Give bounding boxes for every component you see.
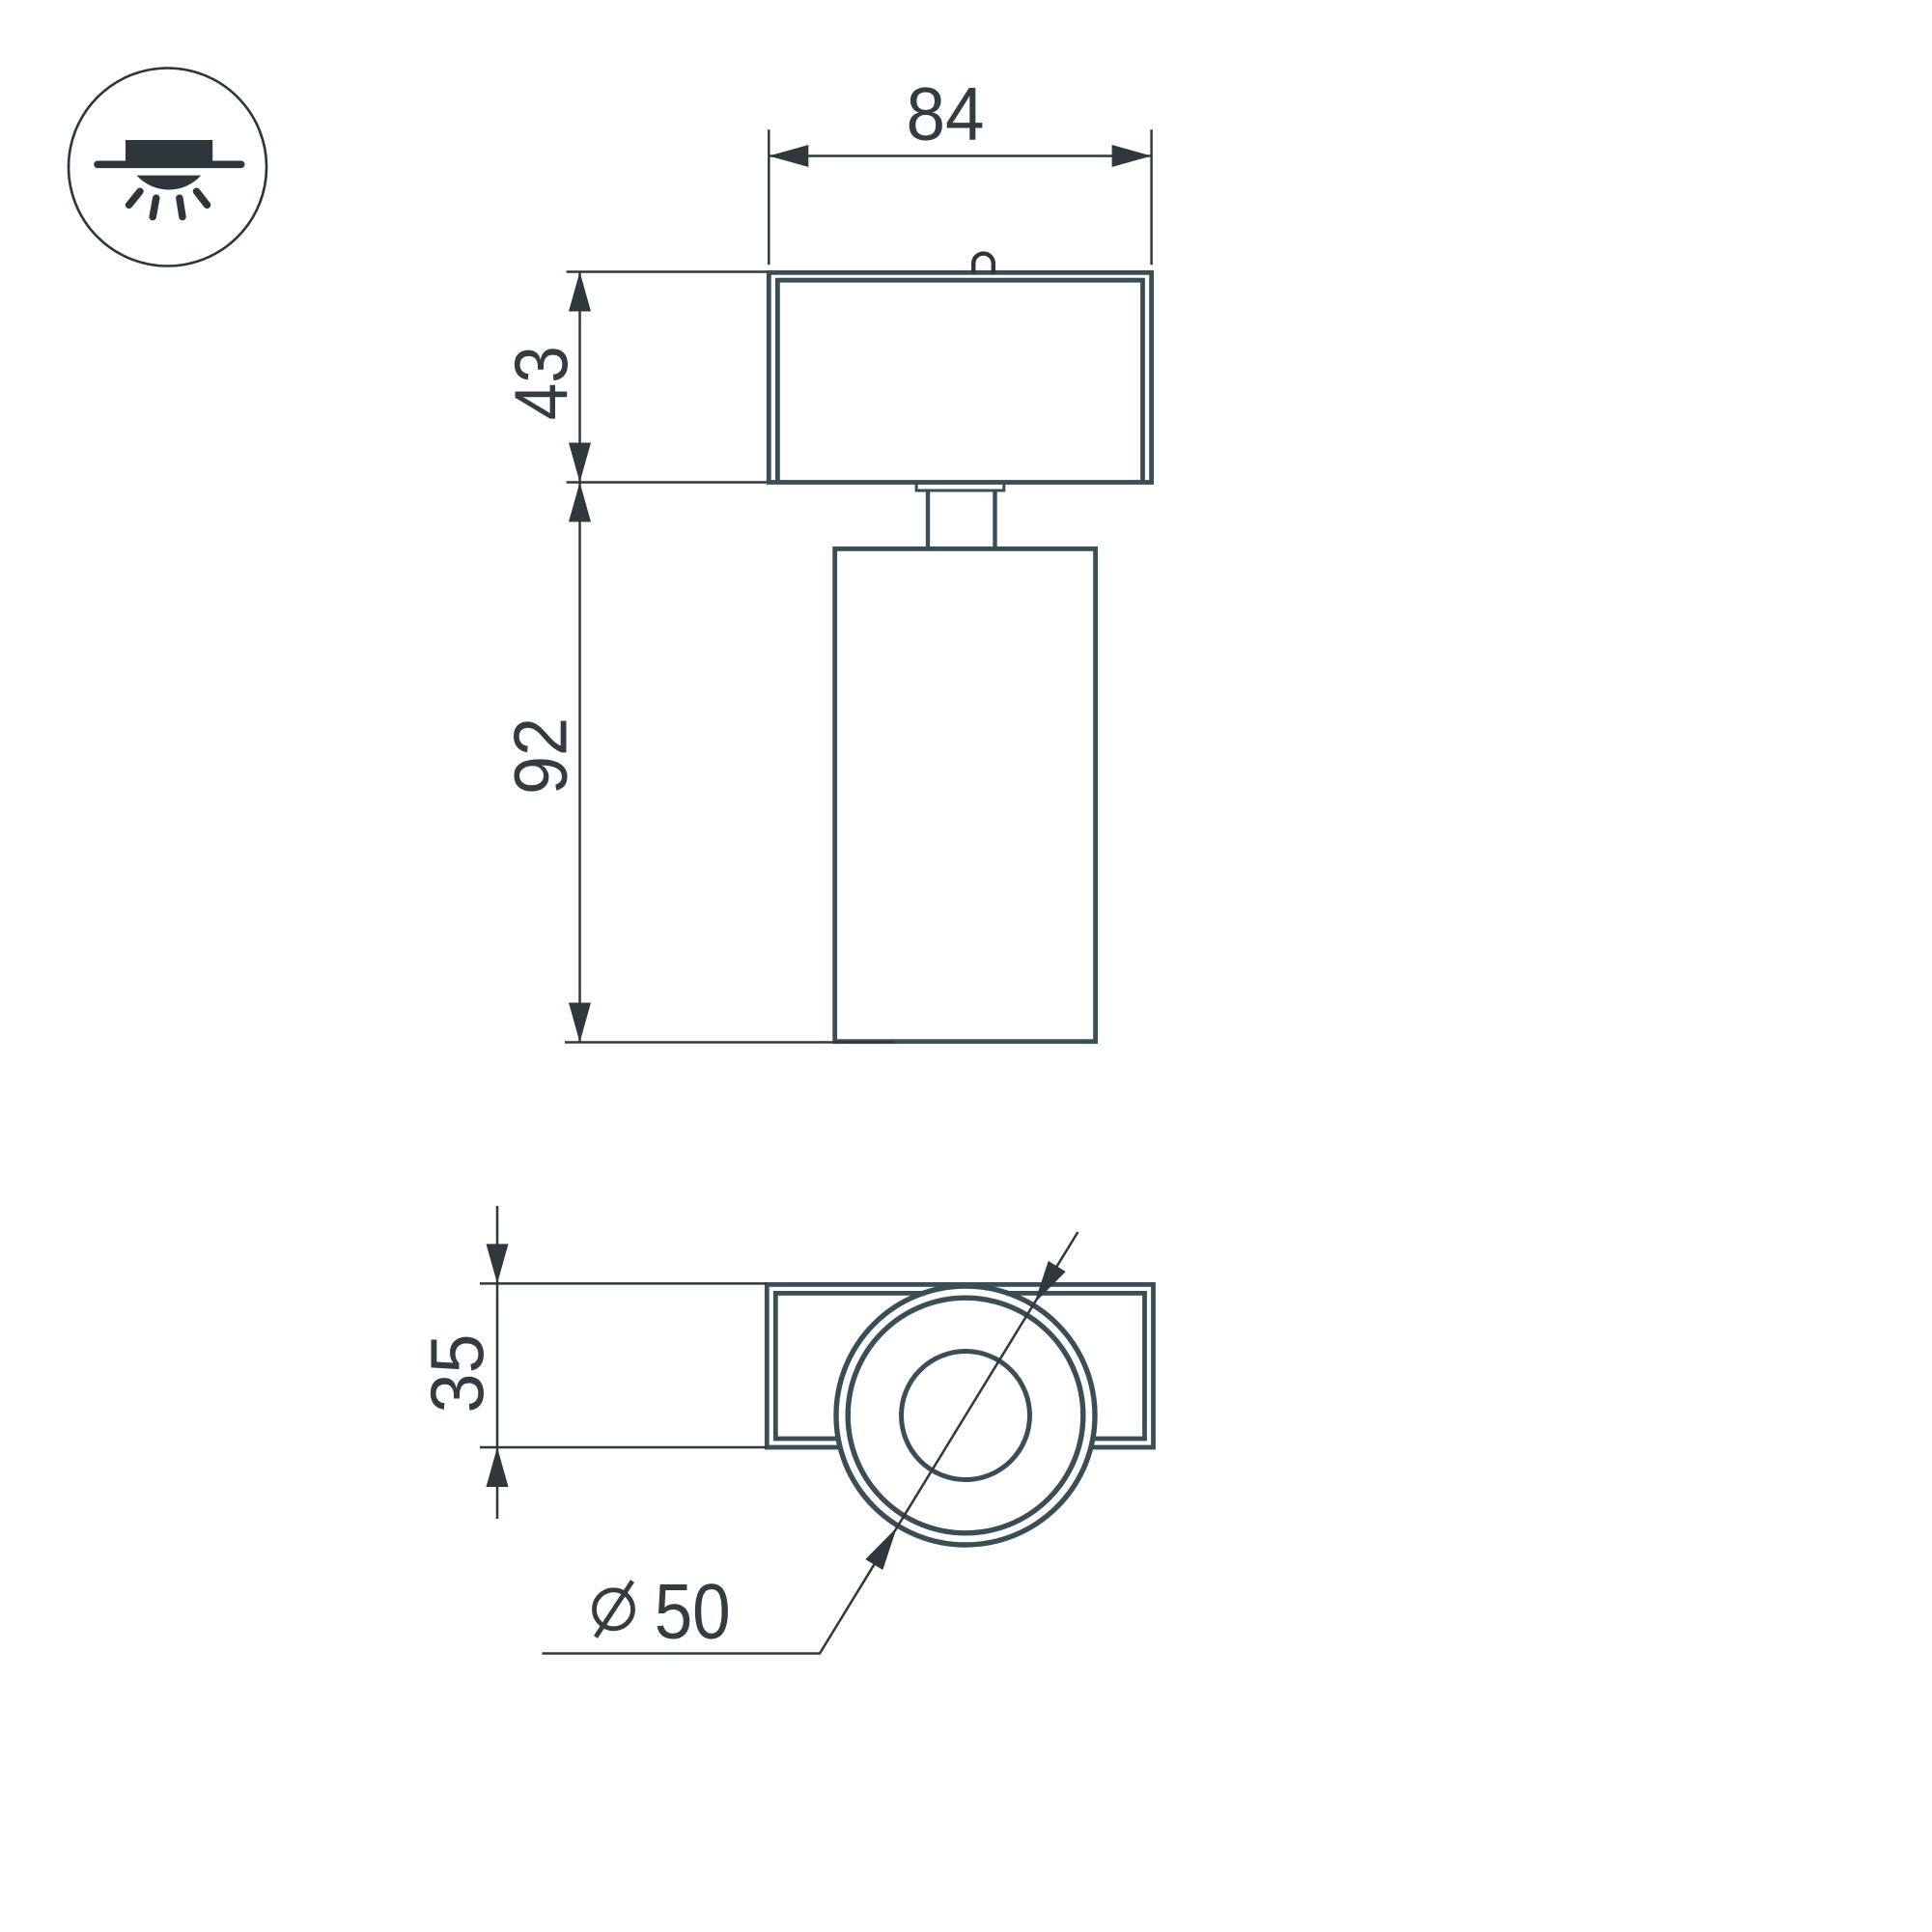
svg-text:92: 92 (498, 717, 583, 795)
svg-text:43: 43 (498, 346, 583, 420)
svg-text:84: 84 (907, 71, 985, 156)
svg-text:50: 50 (655, 1568, 731, 1655)
svg-text:35: 35 (414, 1334, 499, 1414)
